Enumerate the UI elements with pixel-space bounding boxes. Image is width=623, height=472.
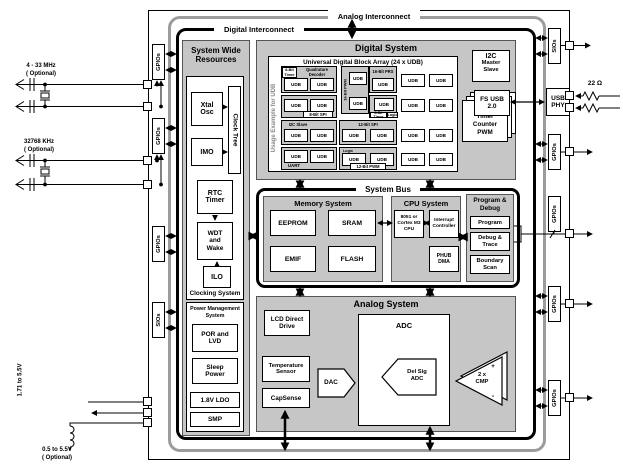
sleep-power-block: Sleep Power bbox=[192, 358, 238, 384]
udb-usage-label: Usage Example for UDB bbox=[269, 66, 279, 170]
clock-tree-label: Clock Tree bbox=[231, 114, 238, 147]
pin-square bbox=[143, 180, 152, 189]
pin-square bbox=[143, 156, 152, 165]
usb-resistor-label: 22 Ω bbox=[580, 78, 610, 88]
system-wide-resources-title: System Wide Resources bbox=[183, 44, 249, 66]
gpio-box-right-3: GPIOs bbox=[548, 286, 561, 322]
pin-square bbox=[143, 418, 152, 427]
program-debug-title: Program & Debug bbox=[466, 196, 514, 213]
udb-label-8bit-spi: 8-Bit SPI bbox=[303, 111, 333, 118]
ldo-block: 1.8V LDO bbox=[190, 392, 240, 408]
power-wiring bbox=[70, 402, 143, 450]
udb-label-quadrature: Quadrature Decoder bbox=[298, 68, 336, 75]
udb-cell: UDB bbox=[429, 99, 453, 112]
analog-system-title: Analog System bbox=[256, 298, 516, 309]
pin-square bbox=[565, 103, 574, 112]
udb-cell: UDB bbox=[342, 129, 366, 142]
vdd-range-label: 1.71 to 5.5V bbox=[8, 356, 34, 404]
udb-label-16bit-pwm: 16-Bit PWM bbox=[341, 68, 348, 112]
gpio-box-right-2: GPIOs bbox=[548, 196, 561, 232]
pin-square bbox=[565, 91, 574, 100]
i2c-master-slave-block: I2C Master Slave bbox=[472, 50, 510, 82]
del-sig-adc-label: Del Sig ADC bbox=[398, 366, 436, 386]
pin-square bbox=[143, 408, 152, 417]
crystal-circuit-khz bbox=[16, 154, 162, 191]
flash-block: FLASH bbox=[328, 246, 376, 272]
clock-tree-block: Clock Tree bbox=[228, 86, 241, 174]
cmp-plus: + bbox=[489, 362, 497, 370]
pin-square bbox=[565, 41, 574, 50]
gpio-box-left-3: GPIOs bbox=[152, 226, 165, 262]
eeprom-block: EEPROM bbox=[270, 210, 316, 236]
resistor-symbol bbox=[583, 92, 599, 100]
pin-square bbox=[565, 299, 574, 308]
udb-label-12bit-pwm: 12-Bit PWM bbox=[350, 163, 386, 170]
psoc-architecture-diagram: Analog Interconnect Digital Interconnect… bbox=[0, 0, 623, 472]
pin-square bbox=[143, 80, 152, 89]
gpio-box-left-2: GPIOs bbox=[152, 118, 165, 154]
cmp-minus: - bbox=[489, 392, 497, 400]
udb-cell: UDB bbox=[284, 78, 308, 91]
udb-cell: UDB bbox=[370, 129, 394, 142]
udb-cell: UDB bbox=[429, 74, 453, 87]
udb-cell: UDB bbox=[401, 153, 425, 166]
boundary-scan-block: Boundary Scan bbox=[470, 255, 510, 274]
udb-label-logic-1: Logic bbox=[387, 112, 398, 118]
udb-cell: UDB bbox=[429, 129, 453, 142]
gpio-box-left-1: GPIOs bbox=[152, 44, 165, 80]
power-management-caption: Power Management System bbox=[187, 305, 243, 320]
sram-block: SRAM bbox=[328, 210, 376, 236]
inductor-symbol bbox=[70, 426, 74, 447]
udb-cell: UDB bbox=[310, 78, 334, 91]
temperature-sensor-block: Temperature Sensor bbox=[262, 356, 310, 382]
por-lvd-block: POR and LVD bbox=[192, 324, 238, 352]
clocking-system-caption: Clocking System bbox=[188, 289, 242, 298]
udb-label-8bit-timer-1: 8-Bit Timer bbox=[282, 67, 297, 78]
udb-cell: UDB bbox=[349, 72, 367, 85]
rtc-timer-block: RTC Timer bbox=[197, 180, 233, 214]
adc-title: ADC bbox=[358, 320, 450, 330]
digital-interconnect-label: Digital Interconnect bbox=[214, 23, 304, 35]
ilo-block: ILO bbox=[203, 266, 231, 288]
phub-dma-block: PHUB DMA bbox=[429, 246, 459, 272]
sio-box-left: SIOs bbox=[152, 302, 165, 338]
udb-cell: UDB bbox=[401, 129, 425, 142]
dac-label: DAC bbox=[318, 376, 344, 388]
system-bus-label: System Bus bbox=[356, 183, 420, 195]
fs-usb-block: FS USB 2.0 bbox=[474, 90, 510, 116]
i2c-sub: Master Slave bbox=[473, 60, 509, 74]
cmp-label: 2 x CMP bbox=[468, 370, 496, 388]
pin-square bbox=[565, 393, 574, 402]
interrupt-controller-block: Interrupt Controller bbox=[429, 210, 459, 238]
udb-label-logic-2: Logic bbox=[341, 148, 355, 154]
pin-square bbox=[565, 147, 574, 156]
sio-box-right: SIOs bbox=[548, 28, 561, 64]
pin-square bbox=[143, 397, 152, 406]
pin-square bbox=[565, 229, 574, 238]
xtal-osc-block: Xtal Osc bbox=[191, 92, 223, 126]
debug-trace-block: Debug & Trace bbox=[470, 232, 510, 251]
xtal-khz-label: 32768 KHz ( Optional) bbox=[10, 138, 68, 155]
imo-block: IMO bbox=[191, 138, 223, 166]
udb-cell: UDB bbox=[429, 153, 453, 166]
udb-label-8bit-timer-2: 8-Bit Timer bbox=[370, 112, 387, 118]
udb-cell: UDB bbox=[284, 129, 308, 142]
udb-label-12bit-spi: 12-Bit SPI bbox=[352, 121, 384, 128]
udb-label-16bit-prs: 16-Bit PRS bbox=[370, 68, 396, 75]
udb-array-title: Universal Digital Block Array (24 x UDB) bbox=[268, 58, 458, 66]
crystal-circuit-mhz bbox=[16, 78, 162, 113]
udb-cell: UDB bbox=[401, 74, 425, 87]
udb-cell: UDB bbox=[310, 129, 334, 142]
wdt-wake-block: WDT and Wake bbox=[197, 222, 233, 260]
gpio-box-right-1: GPIOs bbox=[548, 134, 561, 170]
udb-label-i2c-slave: I2C Slave bbox=[283, 121, 313, 128]
xtal-mhz-label: 4 - 33 MHz ( Optional) bbox=[14, 62, 68, 79]
analog-interconnect-label: Analog Interconnect bbox=[328, 10, 420, 22]
gpio-box-right-4: GPIOs bbox=[548, 380, 561, 416]
memory-system-title: Memory System bbox=[263, 198, 383, 208]
cpu-core-block: 8051 or Cortex M3 CPU bbox=[394, 210, 424, 238]
udb-cell: UDB bbox=[374, 98, 394, 111]
emif-block: EMIF bbox=[270, 246, 316, 272]
udb-label-uart: UART bbox=[283, 162, 305, 169]
capsense-block: CapSense bbox=[262, 388, 310, 408]
udb-cell: UDB bbox=[372, 78, 394, 91]
resistor-symbol bbox=[583, 104, 599, 112]
i2c-title: I2C bbox=[473, 53, 509, 60]
smp-range-label: 0.5 to 5.5V ( Optional) bbox=[24, 446, 90, 463]
lcd-direct-drive-block: LCD Direct Drive bbox=[264, 310, 310, 336]
udb-cell: UDB bbox=[310, 150, 334, 163]
pin-square bbox=[143, 102, 152, 111]
smp-block: SMP bbox=[190, 412, 240, 427]
program-block: Program bbox=[470, 216, 510, 229]
cpu-system-title: CPU System bbox=[391, 198, 461, 208]
udb-cell: UDB bbox=[349, 97, 367, 110]
udb-cell: UDB bbox=[401, 99, 425, 112]
